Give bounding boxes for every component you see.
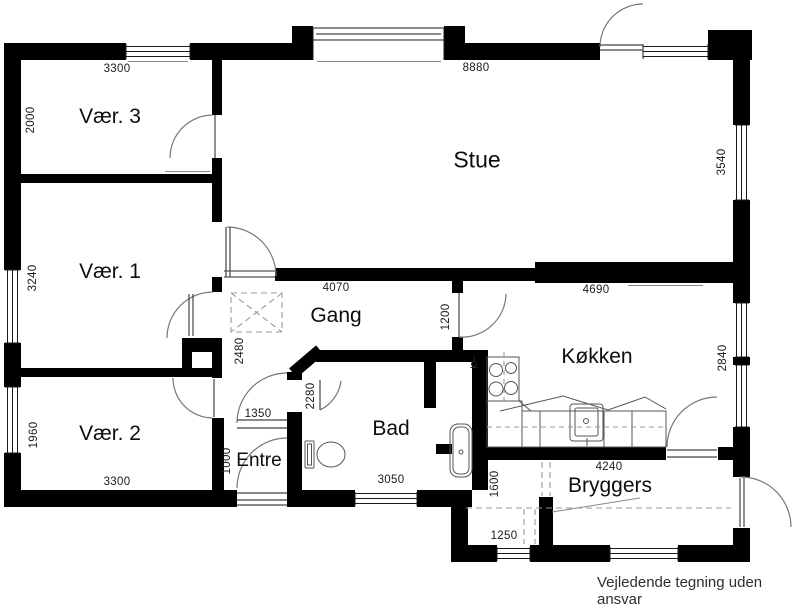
window-stue-top: [313, 28, 444, 60]
dim-1200: 1200: [440, 304, 452, 331]
skylight-mark: [231, 293, 282, 332]
sink-icon: [570, 404, 603, 446]
floor-plan-drawing: [0, 0, 799, 604]
dim-3300-bottom: 3300: [104, 476, 131, 488]
window-koekken-right-2: [735, 365, 749, 427]
dim-4690: 4690: [583, 284, 610, 296]
dim-2480: 2480: [234, 338, 246, 365]
dim-4240: 4240: [596, 461, 623, 473]
dim-2280: 2280: [305, 383, 317, 410]
dim-4070: 4070: [323, 282, 350, 294]
room-label-gang: Gang: [310, 304, 361, 328]
door-gang-koekken: [459, 293, 506, 337]
dim-1250: 1250: [491, 530, 518, 542]
room-label-bryggers: Bryggers: [568, 474, 652, 498]
dim-1960: 1960: [28, 422, 40, 449]
window-bad-bottom: [355, 492, 417, 506]
door-gang-stue: [224, 227, 276, 277]
toilet-icon: [305, 441, 345, 468]
stove-icon: [487, 357, 519, 401]
door-koekken-bryggers: [667, 397, 717, 457]
door-bad: [320, 380, 341, 410]
dim-1350: 1350: [245, 408, 272, 420]
dim-3540: 3540: [716, 149, 728, 176]
room-label-vaer-2: Vær. 2: [79, 422, 141, 446]
dim-3240: 3240: [27, 265, 39, 292]
window-top-right: [643, 44, 708, 59]
disclaimer-text: Vejledende tegning uden ansvar: [597, 574, 799, 604]
bathtub-icon: [450, 424, 472, 477]
window-bryggers-bottom-small: [497, 547, 530, 561]
window-vaer1-left: [5, 270, 20, 343]
room-label-koekken: Køkken: [561, 345, 632, 369]
room-label-entre: Entre: [236, 450, 281, 472]
dim-1000: 1000: [221, 448, 233, 475]
dim-1600: 1600: [489, 471, 501, 498]
window-vaer3-top: [126, 44, 190, 59]
dim-2840: 2840: [717, 345, 729, 372]
door-vaer2: [173, 378, 214, 418]
dim-8880: 8880: [463, 62, 490, 74]
door-bryggers-exterior: [740, 477, 791, 527]
window-stue-right: [735, 125, 749, 200]
room-label-vaer-1: Vær. 1: [79, 260, 141, 284]
room-label-bad: Bad: [372, 417, 409, 441]
dim-2000: 2000: [25, 107, 37, 134]
door-vaer3: [170, 115, 215, 158]
bryggers-leader-line: [552, 498, 640, 512]
room-label-stue: Stue: [453, 147, 500, 174]
window-bryggers-bottom: [610, 547, 678, 561]
dim-3050: 3050: [378, 474, 405, 486]
door-stue-entry: [600, 4, 643, 50]
dim-3300-top: 3300: [104, 63, 131, 75]
floor-plan: Vær. 3 Stue Vær. 1 Gang Køkken Vær. 2 En…: [0, 0, 799, 604]
room-label-vaer-3: Vær. 3: [79, 105, 141, 129]
window-koekken-right-1: [735, 303, 749, 357]
window-vaer2-left: [5, 387, 20, 453]
door-vaer1: [167, 292, 213, 338]
